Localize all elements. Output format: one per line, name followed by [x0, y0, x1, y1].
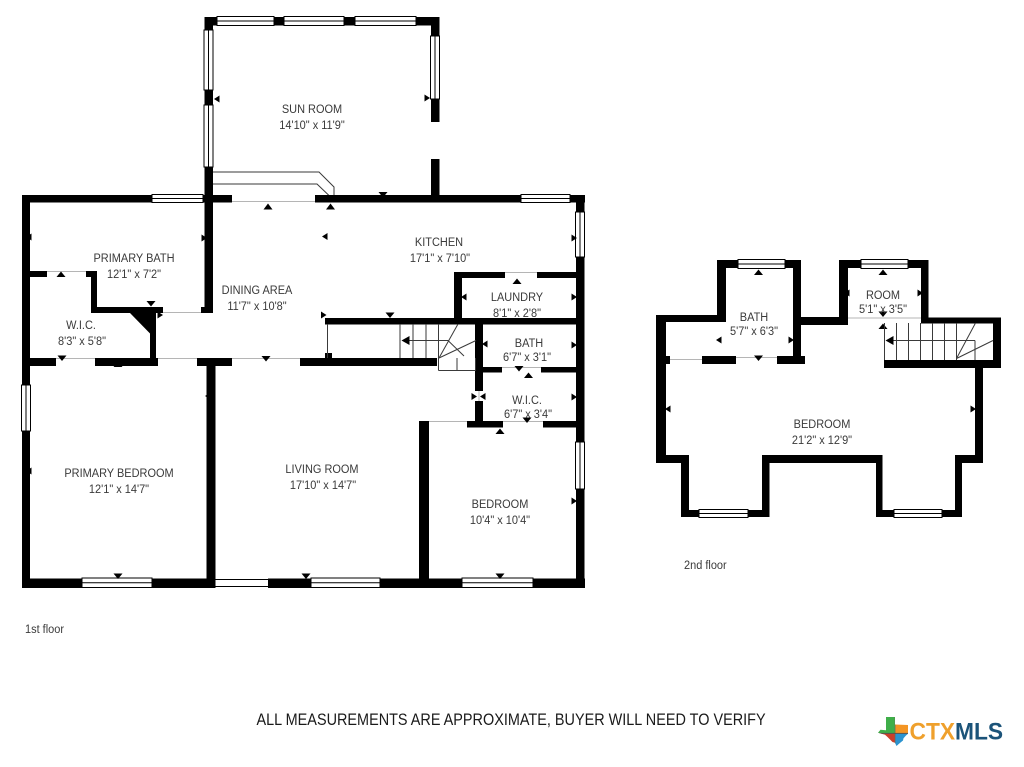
- svg-text:5'1" x 3'5": 5'1" x 3'5": [859, 302, 907, 316]
- svg-text:17'10" x 14'7": 17'10" x 14'7": [290, 478, 356, 492]
- svg-text:17'1" x 7'10": 17'1" x 7'10": [410, 251, 470, 265]
- svg-text:BEDROOM: BEDROOM: [794, 417, 851, 431]
- svg-text:5'7" x 6'3": 5'7" x 6'3": [730, 324, 778, 338]
- svg-text:DINING AREA: DINING AREA: [222, 283, 293, 297]
- svg-text:BEDROOM: BEDROOM: [472, 497, 529, 511]
- svg-text:LIVING ROOM: LIVING ROOM: [285, 462, 358, 476]
- svg-text:SUN ROOM: SUN ROOM: [282, 102, 342, 116]
- svg-text:W.I.C.: W.I.C.: [512, 393, 542, 407]
- svg-text:PRIMARY BEDROOM: PRIMARY BEDROOM: [64, 466, 173, 480]
- svg-text:6'7" x 3'4": 6'7" x 3'4": [504, 407, 552, 421]
- svg-text:11'7" x 10'8": 11'7" x 10'8": [227, 299, 286, 313]
- svg-text:PRIMARY BATH: PRIMARY BATH: [93, 251, 174, 265]
- svg-text:6'7" x 3'1": 6'7" x 3'1": [503, 350, 551, 364]
- svg-text:14'10" x 11'9": 14'10" x 11'9": [279, 118, 344, 132]
- svg-text:10'4" x 10'4": 10'4" x 10'4": [470, 513, 530, 527]
- svg-text:KITCHEN: KITCHEN: [415, 235, 463, 249]
- svg-text:21'2" x 12'9": 21'2" x 12'9": [792, 433, 852, 447]
- svg-text:ROOM: ROOM: [866, 288, 900, 302]
- svg-text:W.I.C.: W.I.C.: [66, 318, 96, 332]
- svg-text:12'1" x 14'7": 12'1" x 14'7": [89, 482, 149, 496]
- svg-text:BATH: BATH: [515, 336, 543, 350]
- svg-text:8'3" x 5'8": 8'3" x 5'8": [58, 334, 106, 348]
- svg-text:1st floor: 1st floor: [25, 622, 64, 636]
- svg-text:CTXMLS: CTXMLS: [910, 719, 1004, 746]
- svg-text:2nd floor: 2nd floor: [684, 558, 727, 572]
- svg-text:BATH: BATH: [740, 310, 768, 324]
- svg-text:8'1" x 2'8": 8'1" x 2'8": [493, 306, 541, 320]
- svg-text:12'1" x 7'2": 12'1" x 7'2": [107, 267, 161, 281]
- svg-text:LAUNDRY: LAUNDRY: [491, 290, 543, 304]
- svg-text:ALL MEASUREMENTS ARE APPROXIMA: ALL MEASUREMENTS ARE APPROXIMATE, BUYER …: [257, 711, 766, 729]
